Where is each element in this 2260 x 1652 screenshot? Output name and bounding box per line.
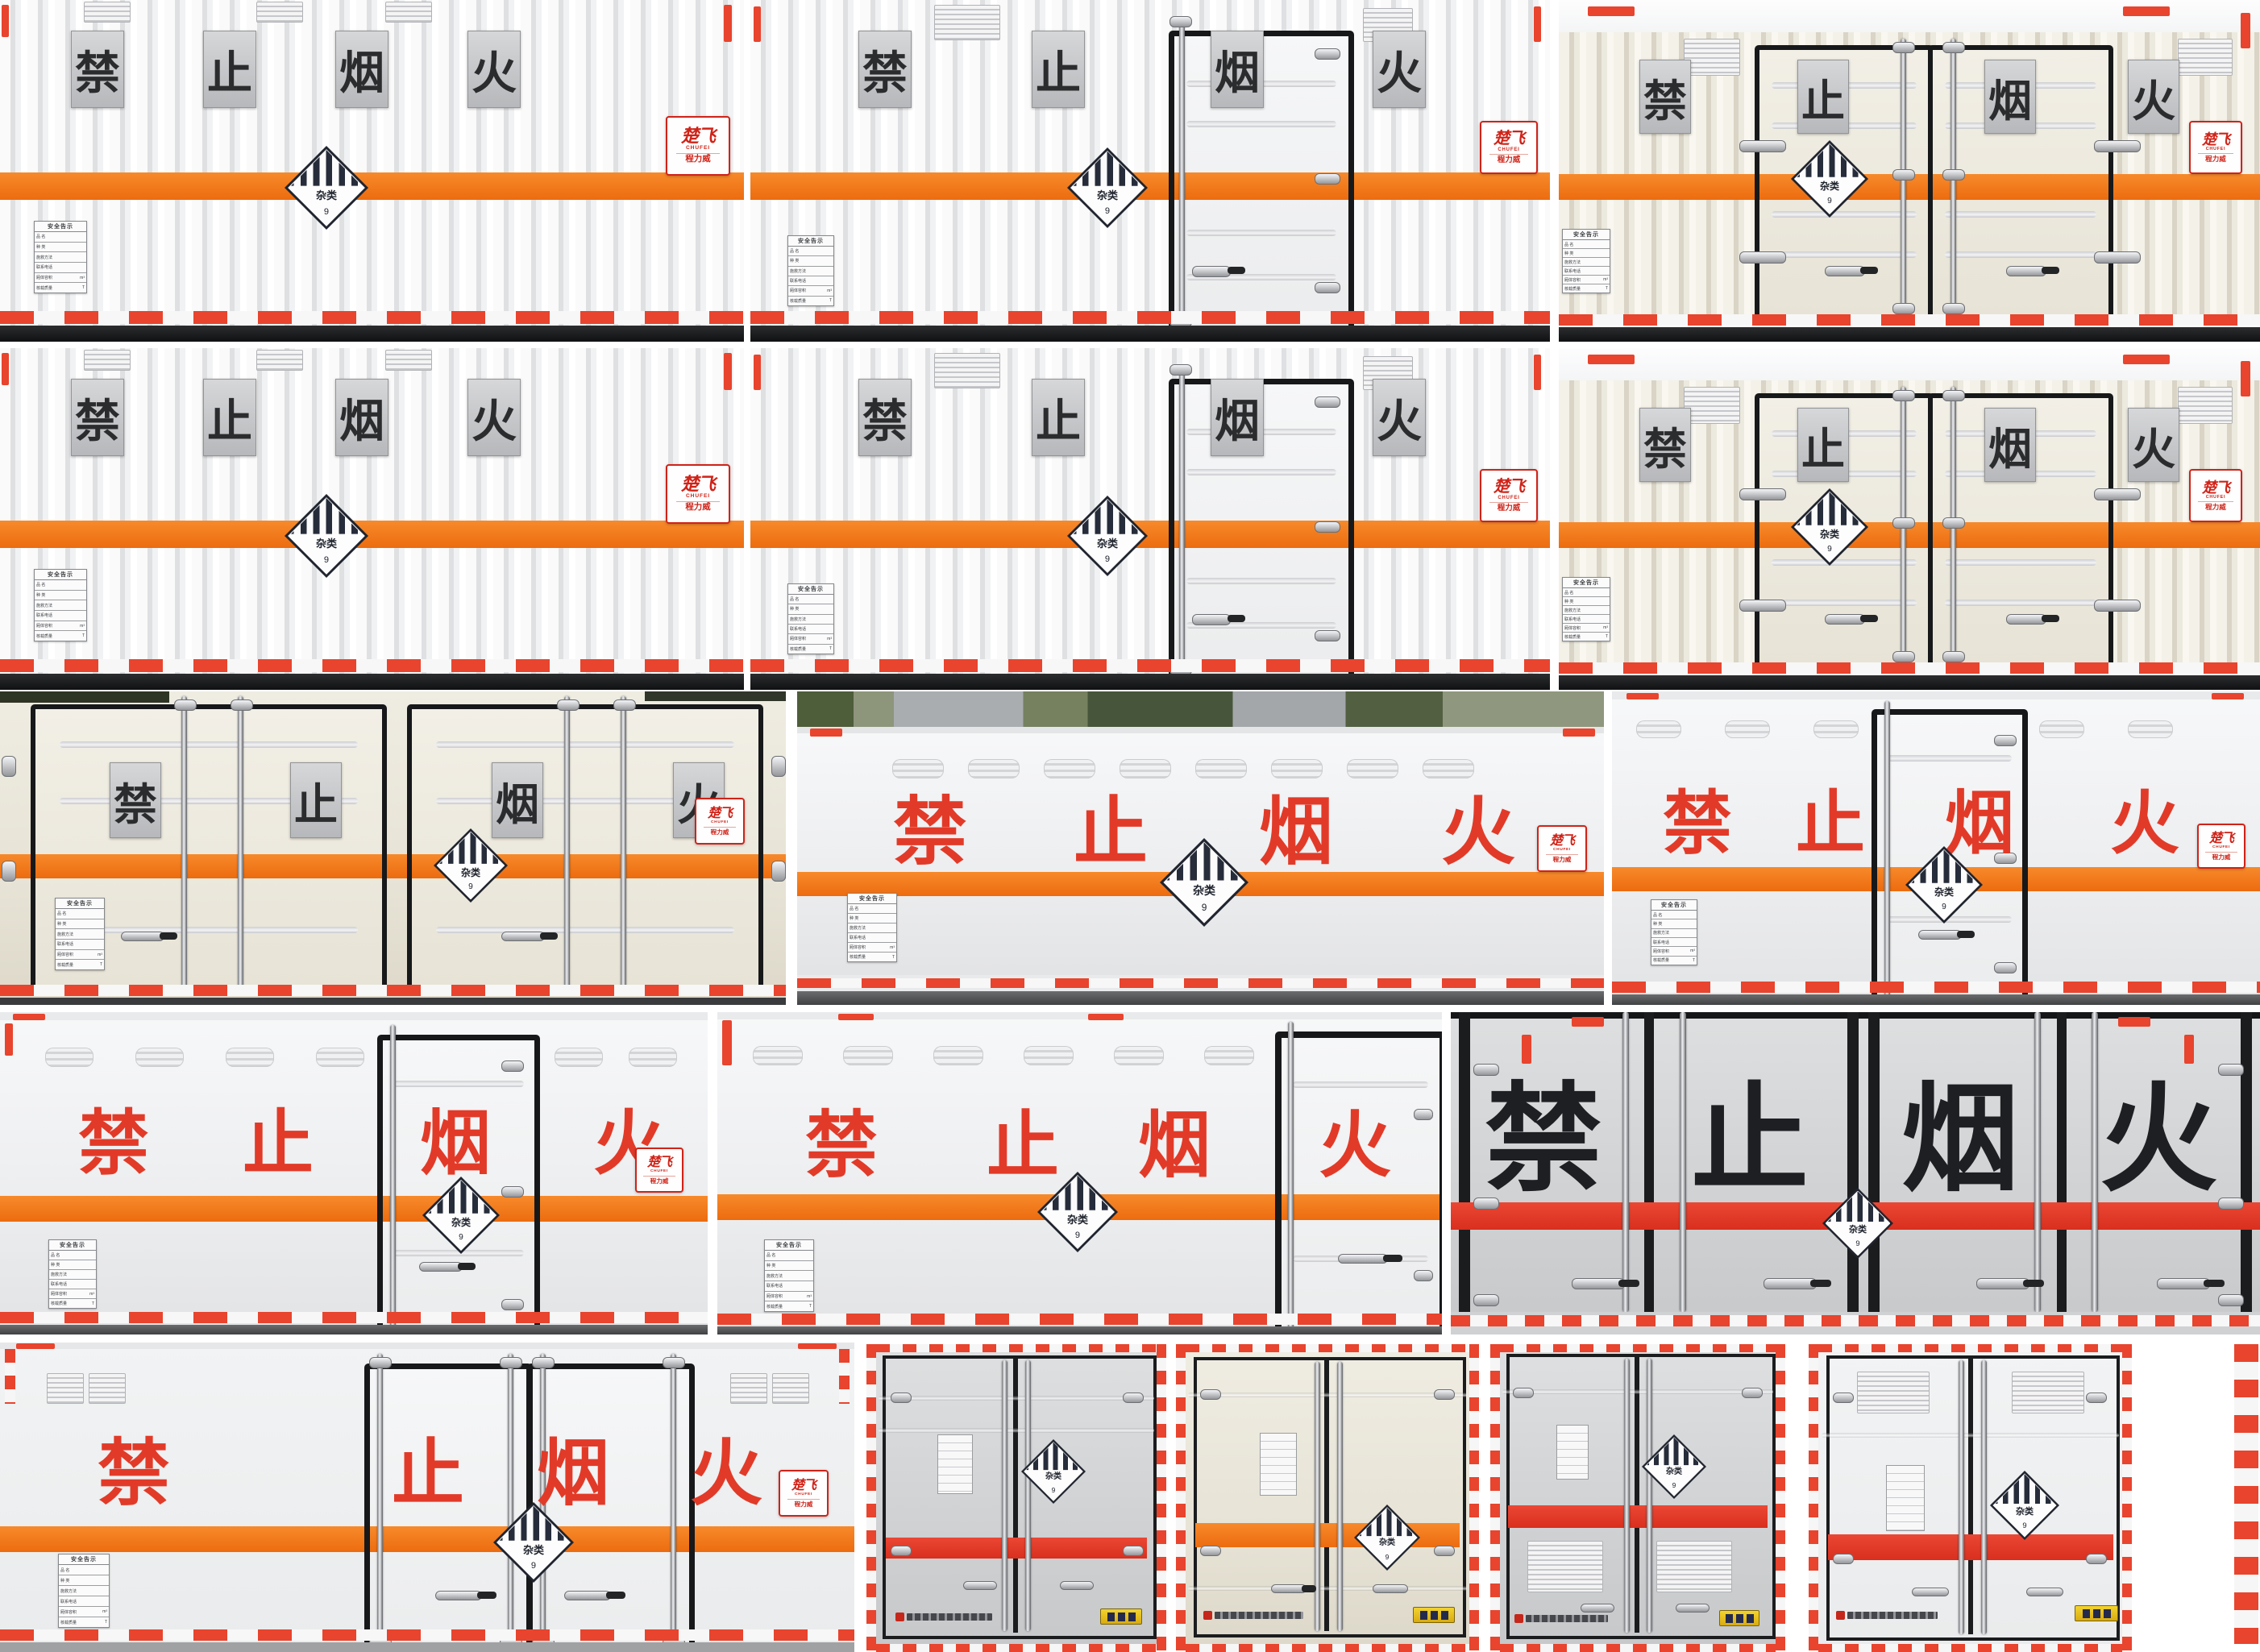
louver-vent-icon <box>385 350 432 371</box>
brand-sub: 程力威 <box>1498 504 1521 513</box>
vent-slot <box>1423 759 1474 778</box>
plate-title: 安全告示 <box>35 570 86 580</box>
photo-rear-doors-white: 禁 止 烟 火 杂类 9 安全告示 品 名 种 类 施救方法 联系电话 厢体容积… <box>0 1343 854 1652</box>
plate-row: 种 类 <box>35 591 86 601</box>
plate-row: 厢体容积m³ <box>59 1607 109 1617</box>
plate-row: 施救方法 <box>1651 929 1697 938</box>
plate-row: 厢体容积m³ <box>788 286 833 296</box>
vent-slot <box>45 1048 93 1067</box>
reflective-band <box>1559 662 2260 674</box>
reflective-corner-strip <box>2241 13 2250 48</box>
lock-cam <box>532 1357 555 1368</box>
placard-class-text: 杂类 <box>1067 190 1148 201</box>
door-rib <box>1188 1586 1467 1591</box>
manufacturer-text-lines <box>907 1613 992 1621</box>
ban-char: 止 <box>242 1107 314 1180</box>
reflective-corner-strip <box>2123 355 2170 364</box>
plate-title: 安全告示 <box>788 584 833 595</box>
brand-name-en: CHUFEI <box>1498 147 1519 152</box>
plate-row-unit: T <box>829 646 832 651</box>
photo-box-cream-doors-2: 禁 止 烟 火 杂类 9 安全告示 品 名 种 类 施救方法 联系电话 厢体容积… <box>1559 348 2260 690</box>
placard-class-number: 9 <box>1354 1554 1420 1561</box>
door-frame <box>1847 1012 1859 1312</box>
door-lock-rod <box>1624 1359 1630 1633</box>
door-handle-grip <box>160 932 177 940</box>
safety-notice-plate: 安全告示 品 名 种 类 施救方法 联系电话 厢体容积m³ 核载质量T <box>764 1239 814 1312</box>
plate-row-unit: m³ <box>1690 948 1695 953</box>
plate-row: 施救方法 <box>788 267 833 276</box>
door-seam <box>1644 1012 1654 1312</box>
plate-row-label: 联系电话 <box>790 278 806 284</box>
top-rail <box>717 1012 1442 1019</box>
door-handle <box>2026 1588 2063 1596</box>
brand-logo-plate: 楚飞 CHUFEI 程力威 <box>2189 469 2242 522</box>
door-seam <box>1968 1355 1973 1634</box>
door-groove <box>1945 600 2096 606</box>
placard-class-text: 杂类 <box>1037 1214 1118 1225</box>
vent-slot <box>1347 759 1398 778</box>
placard-class-number: 9 <box>1037 1231 1118 1240</box>
door-handle-grip <box>1860 267 1878 274</box>
placard-class-number: 9 <box>1067 207 1148 216</box>
plate-title: 安全告示 <box>848 894 896 904</box>
ban-char-plate: 火 <box>2128 408 2179 482</box>
plate-row: 联系电话 <box>35 611 86 621</box>
door-lock-rod <box>1959 1360 1964 1634</box>
lock-cam <box>1942 390 1965 401</box>
reflective-corner-strip <box>2184 1035 2194 1064</box>
door-hinge <box>1742 1388 1763 1398</box>
door-handle <box>1060 1581 1094 1590</box>
chassis-shadow <box>0 674 744 690</box>
lock-cam <box>369 1357 392 1368</box>
plate-row: 种 类 <box>848 914 896 924</box>
ban-char-plate: 火 <box>467 31 521 108</box>
reflective-corner-strip <box>2123 6 2170 16</box>
door-handle-grip <box>2023 1280 2044 1287</box>
plate-row-label: 联系电话 <box>766 1283 783 1289</box>
placard-class-number: 9 <box>1905 903 1983 911</box>
reflective-frame <box>1500 1344 1776 1352</box>
brand-sub: 程力威 <box>2205 504 2226 511</box>
plate-row-label: 品 名 <box>60 1567 69 1573</box>
door-groove <box>1772 600 1917 606</box>
plate-row-label: 核载质量 <box>850 954 866 960</box>
chassis-shadow <box>1559 327 2260 342</box>
safety-notice-plate: 安全告示 品 名 种 类 施救方法 联系电话 厢体容积m³ 核载质量T <box>58 1554 110 1628</box>
brand-name: 楚飞 <box>791 1480 816 1492</box>
brand-sub: 程力威 <box>685 156 710 164</box>
plate-row-unit: T <box>1606 634 1608 639</box>
louver-vent-icon <box>1527 1541 1603 1592</box>
placard-class-number: 9 <box>1160 903 1248 913</box>
ban-char: 止 <box>1689 1080 1810 1199</box>
placard-class-text: 杂类 <box>422 1218 500 1227</box>
plate-row: 联系电话 <box>1651 938 1697 947</box>
brand-name: 楚飞 <box>2202 132 2229 147</box>
door-hinge <box>1434 1546 1455 1556</box>
plate-row: 联系电话 <box>788 276 833 286</box>
lock-cam <box>231 699 253 711</box>
door-hinge <box>2086 1554 2107 1564</box>
placard-class-text: 杂类 <box>1021 1473 1086 1481</box>
plate-glyph <box>1118 1613 1125 1621</box>
plate-row-label: 联系电话 <box>36 264 52 270</box>
door-frame <box>1459 1012 1470 1312</box>
door-handle <box>1676 1604 1710 1613</box>
ban-char-plate: 火 <box>1373 31 1426 108</box>
plate-row-label: 施救方法 <box>57 932 73 937</box>
chassis-shadow <box>750 326 1550 342</box>
placard-class-number: 9 <box>1791 197 1868 205</box>
placard-class-text: 杂类 <box>285 190 368 201</box>
plate-row-unit: T <box>100 962 102 967</box>
ban-char: 烟 <box>419 1107 492 1180</box>
plate-row-label: 厢体容积 <box>51 1291 67 1297</box>
ban-char-plate: 禁 <box>1639 408 1691 482</box>
door-handle-grip <box>1302 1585 1316 1592</box>
ban-char-plate: 烟 <box>492 762 543 838</box>
door-hinge <box>1434 1389 1455 1400</box>
ban-char-plate: 火 <box>2128 60 2179 134</box>
door-handle-grip <box>1383 1255 1402 1262</box>
hazard-class9-placard: 杂类 9 <box>1160 838 1248 927</box>
plate-row-label: 施救方法 <box>766 1273 783 1279</box>
door-handle <box>1764 1278 1817 1289</box>
plate-row-label: 种 类 <box>1653 921 1662 927</box>
plate-row-label: 种 类 <box>766 1263 775 1268</box>
louver-vent-icon <box>2012 1372 2084 1413</box>
ban-char-plate: 火 <box>467 379 521 456</box>
door-handle <box>2006 266 2046 276</box>
manufacturer-text-lines <box>1847 1612 1938 1619</box>
orange-hazard-stripe <box>0 172 744 200</box>
door-handle <box>419 1262 463 1272</box>
safety-notice-plate: 安全告示 品 名 种 类 施救方法 联系电话 厢体容积m³ 核载质量T <box>787 235 834 306</box>
door-groove <box>1293 1081 1429 1088</box>
plate-row-label: 联系电话 <box>60 1599 77 1604</box>
plate-row-label: 厢体容积 <box>1564 277 1581 283</box>
louver-vent-icon <box>47 1373 84 1404</box>
lock-cam <box>1942 651 1965 662</box>
door-handle-grip <box>2204 1280 2225 1287</box>
chassis-shadow <box>0 998 786 1005</box>
plate-row-label: 施救方法 <box>51 1272 67 1277</box>
louver-vent-icon <box>1684 387 1740 424</box>
door-lock-rod <box>2092 1012 2098 1312</box>
safety-notice-plate: 安全告示 品 名 种 类 施救方法 联系电话 厢体容积m³ 核载质量T <box>48 1239 97 1309</box>
hazard-class9-placard: 杂类 9 <box>1037 1172 1118 1252</box>
placard-class-text: 杂类 <box>493 1545 574 1555</box>
lock-cam <box>613 699 636 711</box>
logo-divider <box>676 153 719 154</box>
chassis-shadow <box>0 326 744 342</box>
logo-divider <box>704 827 737 828</box>
logo-divider <box>2205 852 2237 853</box>
door-handle-grip <box>1860 615 1878 622</box>
logo-divider <box>787 1499 820 1500</box>
plate-row: 核载质量T <box>56 960 104 969</box>
plate-row-unit: m³ <box>827 637 832 641</box>
chassis-shadow <box>0 1325 708 1334</box>
door-lock-rod <box>564 696 570 993</box>
plate-row: 厢体容积m³ <box>788 634 833 644</box>
door-lock-rod <box>621 696 626 993</box>
logo-divider <box>1546 854 1579 855</box>
reflective-corner-strip <box>1522 1035 1531 1064</box>
plate-title: 安全告示 <box>788 236 833 247</box>
ban-char: 禁 <box>1483 1080 1604 1199</box>
plate-glyph <box>2104 1609 2111 1618</box>
door-handle <box>1976 1278 2029 1289</box>
brand-name-en: CHUFEI <box>650 1170 668 1174</box>
temp-license-plate <box>2075 1605 2118 1621</box>
plate-row-label: 厢体容积 <box>790 288 806 293</box>
plate-row: 核载质量T <box>35 631 86 641</box>
door-groove <box>60 741 358 748</box>
brand-logo-plate: 楚飞 CHUFEI 程力威 <box>666 464 730 524</box>
ban-char: 烟 <box>1258 795 1334 870</box>
vent-slot <box>1725 720 1770 738</box>
reflective-frame <box>876 1644 1157 1652</box>
door-groove <box>1186 469 1336 475</box>
ban-char: 烟 <box>1137 1109 1211 1183</box>
door-lock-rod <box>1981 1360 1987 1634</box>
ban-char-plate: 禁 <box>71 379 124 456</box>
placard-class-text: 杂类 <box>1354 1539 1420 1547</box>
reflective-band <box>0 311 744 324</box>
hazard-class9-placard: 杂类 9 <box>1067 147 1148 228</box>
plate-title: 安全告示 <box>1651 900 1697 911</box>
plate-row-label: 施救方法 <box>1653 930 1669 936</box>
placard-class-text: 杂类 <box>1791 529 1868 539</box>
reflective-corner-strip <box>838 1014 874 1020</box>
placard-class-number: 9 <box>493 1562 574 1571</box>
plate-row-label: 品 名 <box>36 234 45 239</box>
photo-box-side-door-1: 禁 止 烟 火 杂类 9 安全告示 品 名 种 类 施救方法 联系电话 厢体容积… <box>750 0 1550 342</box>
ban-char-plate: 禁 <box>858 379 912 456</box>
plate-row-label: 厢体容积 <box>790 636 806 641</box>
manufacturer-text <box>1836 1610 1938 1620</box>
reflective-corner-strip <box>754 355 761 390</box>
plate-row: 联系电话 <box>59 1596 109 1607</box>
door-handle <box>1572 1278 1625 1289</box>
plate-row: 厢体容积m³ <box>1563 624 1610 633</box>
brand-sub: 程力威 <box>1498 156 1521 164</box>
door-lock-rod <box>1179 19 1185 326</box>
plate-title: 安全告示 <box>59 1554 109 1565</box>
louver-vent-icon <box>2178 39 2233 76</box>
brand-name: 楚飞 <box>681 127 715 145</box>
red-hazard-stripe <box>1508 1505 1768 1528</box>
brand-name-en: CHUFEI <box>686 146 710 152</box>
plate-row: 施救方法 <box>1563 258 1610 267</box>
reflective-band <box>1559 314 2260 326</box>
vent-slot <box>135 1048 184 1067</box>
lock-cam <box>663 1357 685 1368</box>
reflective-band <box>750 311 1550 324</box>
reflective-corner-strip <box>2241 361 2250 396</box>
ban-char-plate: 烟 <box>1984 408 2036 482</box>
door-hinge <box>1994 962 2017 973</box>
plate-row-label: 品 名 <box>790 248 799 254</box>
plate-row: 种 类 <box>1563 597 1610 606</box>
lock-cam <box>1892 169 1915 181</box>
plate-row: 施救方法 <box>848 924 896 933</box>
door-frame <box>1868 1012 1880 1312</box>
placard-class-number: 9 <box>285 208 368 217</box>
plate-row-unit: T <box>92 1301 94 1306</box>
plate-row: 厢体容积m³ <box>35 621 86 632</box>
reflective-band <box>0 659 744 672</box>
door-hinge <box>1414 1270 1433 1281</box>
orange-hazard-stripe <box>1282 1194 1440 1220</box>
reflective-corner-strip <box>1572 1017 1604 1027</box>
door-handle <box>1373 1584 1408 1593</box>
safety-notice-plate: 安全告示 品 名 种 类 施救方法 联系电话 厢体容积m³ 核载质量T <box>1562 229 1610 293</box>
brand-logo-plate: 楚飞 CHUFEI 程力威 <box>2197 824 2245 869</box>
photo-box-side-door-2: 禁 止 烟 火 杂类 9 安全告示 品 名 种 类 施救方法 联系电话 厢体容积… <box>750 348 1550 690</box>
ban-char: 火 <box>1440 795 1516 870</box>
louver-vent-icon <box>772 1373 809 1404</box>
louver-vent-icon <box>1684 39 1740 76</box>
reflective-frame <box>1776 1344 1785 1652</box>
placard-class-number: 9 <box>1822 1240 1893 1247</box>
plate-row-unit: T <box>82 633 85 638</box>
door-hinge <box>501 1061 524 1072</box>
ban-char: 禁 <box>892 795 968 870</box>
door-groove <box>436 927 734 933</box>
door-groove <box>1945 211 2096 218</box>
temp-license-plate <box>1719 1610 1759 1626</box>
door-rib <box>1188 1393 1467 1397</box>
plate-row-label: 核载质量 <box>1653 957 1669 963</box>
safety-notice-plate: 安全告示 品 名 种 类 施救方法 联系电话 厢体容积m³ 核载质量T <box>34 569 87 641</box>
plate-glyph <box>1441 1611 1448 1620</box>
ban-char: 禁 <box>804 1109 879 1183</box>
plate-glyph <box>1726 1614 1733 1623</box>
brand-logo-plate: 楚飞 CHUFEI 程力威 <box>666 116 730 176</box>
door-handle-grip <box>606 1592 625 1599</box>
reflective-band <box>750 659 1550 672</box>
door-hinge <box>2094 251 2141 264</box>
reflective-corner-strip <box>724 353 732 390</box>
plate-row: 核载质量T <box>49 1299 96 1308</box>
chassis-shadow <box>1559 675 2260 690</box>
hazard-class9-placard: 杂类 9 <box>285 146 368 230</box>
door-handle <box>1192 266 1231 277</box>
placard-class-number: 9 <box>1021 1487 1086 1494</box>
door-hinge <box>501 1186 524 1197</box>
plate-row-label: 厢体容积 <box>1564 625 1581 631</box>
reflective-frame <box>1490 1344 1500 1652</box>
ban-char-plate: 止 <box>290 762 342 838</box>
reflective-band <box>1612 982 2260 993</box>
louver-vent-icon <box>2178 387 2233 424</box>
plate-row-label: 施救方法 <box>1564 259 1581 265</box>
door-groove <box>1186 230 1336 236</box>
chassis-shadow <box>1612 994 2260 1005</box>
door-groove <box>1945 559 2096 566</box>
plate-row: 施救方法 <box>35 600 86 611</box>
door-handle <box>1581 1604 1614 1613</box>
plate-row-unit: T <box>1693 958 1695 963</box>
plate-row-unit: T <box>105 1620 107 1625</box>
reflective-frame <box>1818 1644 2122 1652</box>
plate-row-label: 核载质量 <box>57 962 73 968</box>
reflective-corner-strip <box>839 1349 850 1404</box>
door-handle-grip <box>458 1263 476 1270</box>
vent-slot <box>933 1046 983 1065</box>
plate-row-label: 核载质量 <box>36 633 52 639</box>
brand-name: 楚飞 <box>1494 131 1524 147</box>
plate-row: 品 名 <box>1563 240 1610 249</box>
plate-row-label: 厢体容积 <box>36 623 52 629</box>
photo-small-rear-2: 杂类 9 <box>1176 1344 1479 1652</box>
vent-slot <box>2128 720 2173 738</box>
reflective-corner-strip <box>16 1343 55 1349</box>
door-hinge <box>1833 1554 1854 1564</box>
safety-notice-plate: 安全告示 品 名 种 类 施救方法 联系电话 厢体容积m³ 核载质量T <box>34 221 87 293</box>
lock-cam <box>1169 16 1192 27</box>
photo-rear-doors-zoom: 禁 止 烟 火 杂类 9 <box>1451 1012 2260 1334</box>
plate-row-label: 厢体容积 <box>850 944 866 950</box>
plate-row: 品 名 <box>35 232 86 243</box>
reflective-frame <box>1818 1344 2122 1352</box>
plate-row: 种 类 <box>56 919 104 930</box>
plate-row-label: 施救方法 <box>60 1588 77 1594</box>
reflective-corner-strip <box>722 1020 732 1065</box>
door-handle <box>1918 930 1962 940</box>
plate-row-label: 核载质量 <box>1564 634 1581 640</box>
door-handle <box>2006 614 2046 625</box>
brand-logo-plate: 楚飞 CHUFEI 程力威 <box>1480 121 1538 174</box>
door-lock-rod <box>1002 1360 1007 1631</box>
plate-row: 种 类 <box>788 256 833 266</box>
lock-cam <box>1942 517 1965 529</box>
door-handle-grip <box>477 1592 496 1599</box>
brand-name-en: CHUFEI <box>2206 496 2226 500</box>
vent-slot <box>1044 759 1095 778</box>
manufacturer-logo-icon <box>895 1613 904 1621</box>
top-rail <box>797 727 1604 733</box>
ban-char: 烟 <box>536 1436 610 1512</box>
door-lock-rod <box>1337 1362 1343 1631</box>
louver-vent-icon <box>934 353 1000 388</box>
door-handle <box>1825 614 1865 625</box>
plate-row: 联系电话 <box>788 625 833 634</box>
vent-slot <box>1195 759 1247 778</box>
reflective-frame <box>876 1344 1157 1352</box>
door-seam <box>2057 1012 2067 1312</box>
door-lock-rod <box>377 1354 383 1646</box>
reflective-band <box>717 1314 1442 1325</box>
ban-char-plate: 烟 <box>1211 379 1264 456</box>
brand-sub: 程力威 <box>711 829 729 836</box>
louver-vent-icon <box>256 2 303 23</box>
hazard-class9-placard: 杂类 9 <box>285 494 368 578</box>
placard-class-number: 9 <box>1642 1482 1706 1489</box>
door-lock-rod <box>1179 367 1185 674</box>
plate-row-unit: m³ <box>80 624 85 629</box>
door-rib <box>879 1428 1154 1433</box>
placard-class-text: 杂类 <box>1905 887 1983 897</box>
plate-row-label: 核载质量 <box>790 298 806 304</box>
door-handle <box>1825 266 1865 276</box>
vent-slot <box>1271 759 1323 778</box>
reflective-frame <box>1157 1344 1166 1652</box>
door-handle <box>564 1591 611 1600</box>
